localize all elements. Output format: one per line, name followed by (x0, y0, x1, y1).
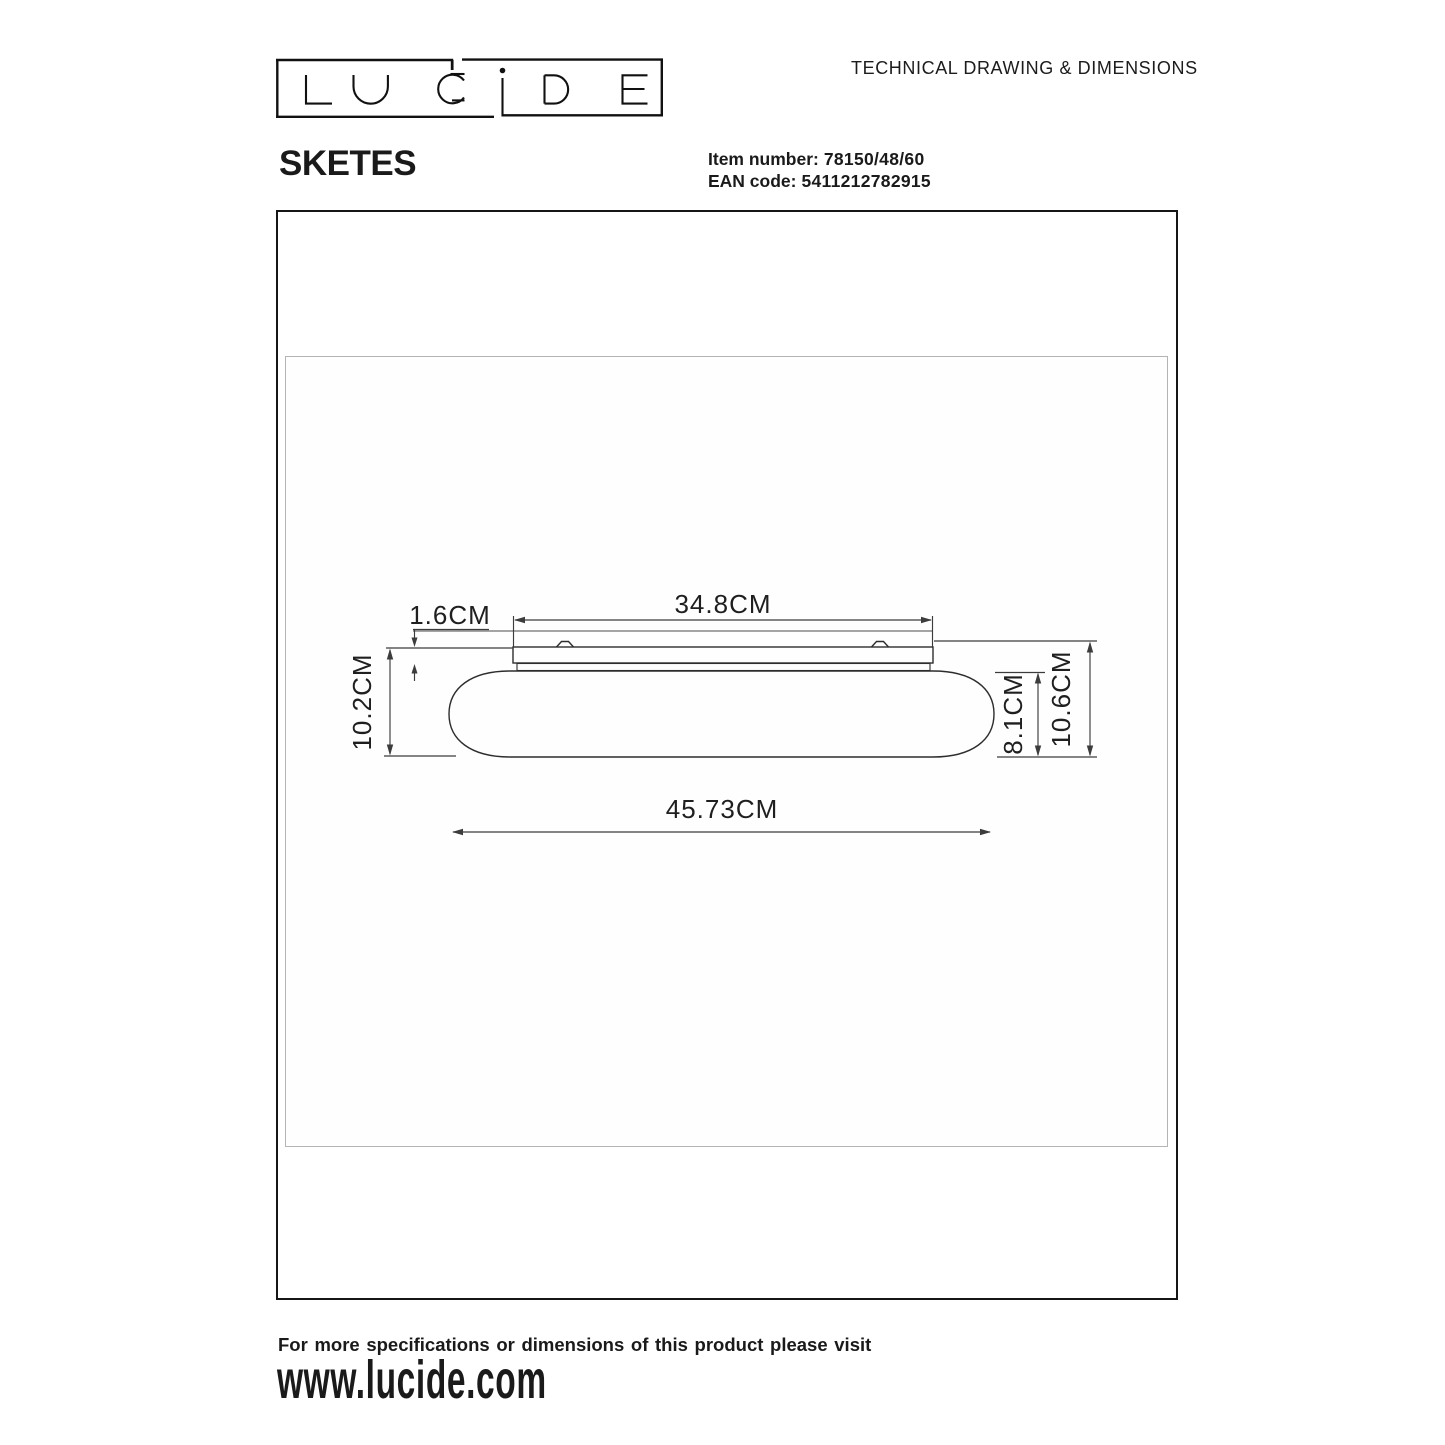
screw-right (872, 642, 889, 648)
arrow-1-6-up (412, 664, 418, 674)
logo-letter-u (354, 75, 388, 104)
dimension-labels: 34.8CM 1.6CM 10.2CM 45.73CM 8.1CM 10.6CM (347, 589, 1076, 824)
logo-letter-i-dot (500, 68, 506, 74)
arrow-height-right-top (1087, 642, 1093, 653)
lamp-side-view (413, 631, 994, 757)
logo-letters (306, 60, 648, 117)
arrow-height-left-top (387, 649, 393, 660)
arrow-body-height-bottom (1035, 746, 1041, 757)
arrow-height-right-bottom (1087, 746, 1093, 757)
arrow-height-left-bottom (387, 745, 393, 756)
logo-letter-e (623, 75, 648, 103)
label-plate-thickness: 1.6CM (409, 600, 491, 630)
technical-drawing-page: TECHNICAL DRAWING & DIMENSIONS SKETES It… (0, 0, 1445, 1445)
label-total-height-left: 10.2CM (347, 653, 377, 750)
logo-letter-l (306, 75, 332, 104)
arrow-1-6-down (412, 638, 418, 648)
footer-website: www.lucide.com (277, 1353, 547, 1407)
mounting-plate (513, 647, 933, 663)
trim-band (517, 664, 930, 671)
label-total-height-right: 10.6CM (1046, 650, 1076, 747)
arrow-plate-width-left (514, 617, 525, 623)
arrow-total-width-right (980, 829, 991, 835)
label-body-height: 8.1CM (998, 673, 1028, 755)
logo-letter-c (438, 75, 464, 104)
logo-letter-d (545, 75, 569, 103)
arrow-plate-width-right (921, 617, 932, 623)
diffuser-body (449, 671, 994, 757)
label-plate-width: 34.8CM (674, 589, 771, 619)
arrow-total-width-left (452, 829, 463, 835)
lucide-logo (276, 60, 663, 117)
drawing-canvas: 34.8CM 1.6CM 10.2CM 45.73CM 8.1CM 10.6CM (0, 0, 1445, 1445)
label-total-width: 45.73CM (666, 794, 779, 824)
arrow-body-height-top (1035, 673, 1041, 684)
screw-left (557, 642, 574, 648)
logo-box-top-left-segment (276, 60, 452, 70)
logo-box-top-right-segment (462, 60, 662, 116)
